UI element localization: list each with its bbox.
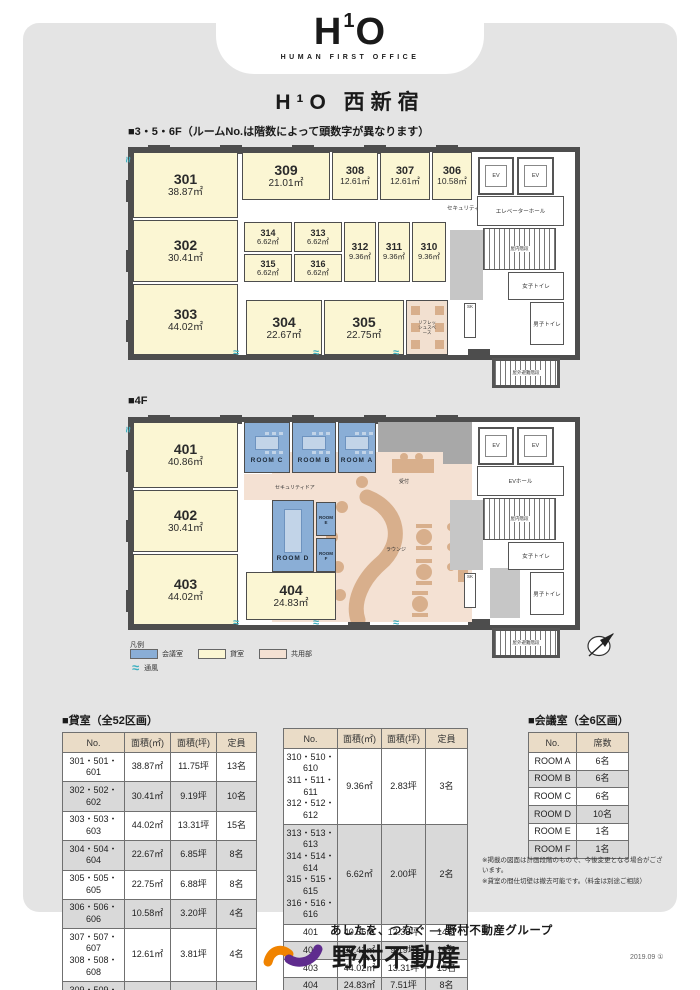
meeting-table-section: ■会議室（全6区画） No.席数 ROOM A6名ROOM B6名ROOM C6… — [528, 712, 629, 859]
table-cell: 9.36㎡ — [338, 749, 382, 825]
table-cell: 4名 — [217, 929, 257, 982]
legend-vent: ≈ 通風 — [132, 661, 158, 674]
room-number: 305 — [352, 314, 375, 330]
meeting-table — [255, 436, 279, 450]
vent-icon: ≈ — [393, 348, 399, 359]
reception-desk — [392, 459, 434, 473]
room-314: 314 6.62㎡ — [244, 222, 292, 252]
table-cell: 7名 — [217, 982, 257, 990]
column-header: 面積(坪) — [171, 733, 217, 753]
legend-swatch — [198, 649, 226, 659]
men-toilet-label: 男子トイレ — [533, 590, 561, 598]
logo-letter: H — [314, 13, 342, 51]
table-row: 313・513・613 314・514・614 315・515・615 316・… — [284, 825, 468, 925]
table-cell: 6.62㎡ — [338, 825, 382, 925]
room-area: 9.36㎡ — [383, 253, 405, 262]
women-toilet: 女子トイレ — [508, 542, 564, 570]
table-row: 310・510・610 311・511・611 312・512・6129.36㎡… — [284, 749, 468, 825]
meeting-room-d: ROOM D — [272, 500, 314, 572]
elevator-hall: エレベーターホール — [477, 196, 564, 226]
room-area: 38.87㎡ — [168, 187, 203, 199]
table-cell: 22.75㎡ — [125, 870, 171, 899]
table-cell: 3.20坪 — [171, 899, 217, 928]
logo-letter: O — [356, 13, 387, 51]
table-cell: 1名 — [577, 823, 629, 841]
elevator: EV — [517, 427, 554, 465]
wall-pillar — [468, 349, 490, 358]
meeting-room-c: ROOM C — [244, 422, 290, 473]
elevator-car: EV — [524, 435, 547, 457]
column-header: 面積(㎡) — [125, 733, 171, 753]
vent-icon: ≈ — [122, 426, 133, 432]
room-403: 403 44.02㎡ — [133, 554, 238, 625]
rental-table-section: ■貸室（全52区画） No.面積(㎡)面積(坪)定員 301・501・60138… — [62, 712, 257, 990]
room-area: 9.36㎡ — [418, 253, 440, 262]
table-cell: ROOM D — [529, 806, 577, 824]
sk-label: SK — [467, 574, 473, 579]
table-cell: 3.81坪 — [171, 929, 217, 982]
room-401: 401 40.86㎡ — [133, 422, 238, 488]
room-307: 307 12.61㎡ — [380, 152, 430, 200]
table-header-row: No.面積(㎡)面積(坪)定員 — [284, 729, 468, 749]
table-row: 305・505・60522.75㎡6.88坪8名 — [63, 870, 257, 899]
table-cell: 302・502・602 — [63, 782, 125, 811]
room-308: 308 12.61㎡ — [332, 152, 378, 200]
refresh-table — [435, 340, 444, 349]
table-cell: 306・506・606 — [63, 899, 125, 928]
stairs-label: 屋内階段 — [510, 516, 530, 522]
table-cell: 301・501・601 — [63, 753, 125, 782]
table-body: ROOM A6名ROOM B6名ROOM C6名ROOM D10名ROOM E1… — [529, 753, 629, 859]
header-card: H 1 O HUMAN FIRST OFFICE — [216, 0, 484, 74]
rental-table-title: ■貸室（全52区画） — [62, 712, 257, 728]
room-area: 6.62㎡ — [307, 238, 329, 247]
table-cell: 307・507・607 308・508・608 — [63, 929, 125, 982]
room-area: 12.61㎡ — [340, 177, 370, 187]
refresh-table — [411, 306, 420, 315]
table-cell: 11.75坪 — [171, 753, 217, 782]
table-cell: 12.61㎡ — [125, 929, 171, 982]
room-area: 6.62㎡ — [257, 269, 279, 278]
legend-label: 貸室 — [230, 649, 244, 659]
chairs — [265, 432, 269, 435]
vent-icon: ≈ — [393, 618, 399, 629]
meeting-room-a: ROOM A — [338, 422, 376, 473]
table-cell: 2.00坪 — [382, 825, 426, 925]
chairs — [312, 432, 316, 435]
table-row: 304・504・60422.67㎡6.85坪8名 — [63, 841, 257, 870]
vent-wave-icon: ≈ — [132, 661, 139, 674]
vent-icon: ≈ — [233, 348, 239, 359]
chairs — [355, 451, 359, 454]
column-header: 定員 — [426, 729, 468, 749]
room-area: 21.01㎡ — [268, 178, 303, 190]
room-315: 315 6.62㎡ — [244, 254, 292, 282]
elevator-hall-label: エレベーターホール — [496, 207, 546, 215]
room-number: 304 — [272, 314, 295, 330]
room-number: 302 — [174, 237, 197, 253]
column-header: No. — [529, 733, 577, 753]
table-cell: 6.35坪 — [171, 982, 217, 990]
notes: ※掲載の図面は計画段階のもので、今後変更となる場合がございます。 ※貸室の間仕切… — [482, 856, 667, 888]
room-404: 404 24.83㎡ — [246, 572, 336, 620]
chairs — [265, 451, 269, 454]
ev-label: EV — [532, 173, 539, 179]
column-header: 面積(坪) — [382, 729, 426, 749]
legend-swatch — [259, 649, 287, 659]
table-row: ROOM B6名 — [529, 770, 629, 788]
refresh-space: リフレッシュスペース — [406, 300, 448, 355]
men-toilet: 男子トイレ — [530, 572, 564, 615]
refresh-space-label: リフレッシュスペース — [416, 320, 438, 336]
men-toilet: 男子トイレ — [530, 302, 564, 345]
room-number: 309 — [274, 162, 297, 178]
legend-swatch — [130, 649, 158, 659]
elevator-car: EV — [485, 165, 507, 187]
table-cell: 6名 — [577, 770, 629, 788]
table-cell: 3名 — [426, 749, 468, 825]
ev-hall-label: EVホール — [509, 477, 533, 485]
men-toilet-label: 男子トイレ — [533, 320, 561, 328]
table-header-row: No.面積(㎡)面積(坪)定員 — [63, 733, 257, 753]
table-row: ROOM D10名 — [529, 806, 629, 824]
elevator-hall: EVホール — [477, 466, 564, 496]
table-row: 309・509・60921.01㎡6.35坪7名 — [63, 982, 257, 990]
legend-item-meeting: 会議室 — [130, 649, 183, 659]
table-cell: ROOM E — [529, 823, 577, 841]
table-cell: 13.31坪 — [171, 811, 217, 840]
escape-stairs-label: 屋外避難階段 — [512, 640, 541, 646]
table-row: 40424.83㎡7.51坪8名 — [284, 977, 468, 990]
room-area: 44.02㎡ — [168, 592, 203, 604]
meeting-table — [345, 436, 369, 450]
meeting-room-e: ROOM E — [316, 502, 336, 536]
table-cell: 2名 — [426, 825, 468, 925]
ev-label: EV — [492, 443, 499, 449]
table-cell: 313・513・613 314・514・614 315・515・615 316・… — [284, 825, 338, 925]
table-header-row: No.面積(㎡)面積(坪)定員 — [284, 729, 468, 749]
table-cell: 10名 — [577, 806, 629, 824]
table-row: ROOM C6名 — [529, 788, 629, 806]
note-line: ※掲載の図面は計画段階のもので、今後変更となる場合がございます。 — [482, 856, 667, 876]
meeting-table: No.席数 ROOM A6名ROOM B6名ROOM C6名ROOM D10名R… — [528, 732, 629, 859]
room-301: 301 38.87㎡ — [133, 152, 238, 218]
column-header: No. — [63, 733, 125, 753]
room-310: 310 9.36㎡ — [412, 222, 446, 282]
escape-stairs-label: 屋外避難階段 — [512, 370, 541, 376]
column-header: No. — [284, 729, 338, 749]
room-311: 311 9.36㎡ — [378, 222, 410, 282]
room-area: 22.75㎡ — [346, 330, 381, 342]
column-header: 定員 — [217, 733, 257, 753]
table-header-row: No.面積(㎡)面積(坪)定員 — [63, 733, 257, 753]
meeting-room-label: ROOM D — [277, 555, 310, 562]
table-row: 302・502・60230.41㎡9.19坪10名 — [63, 782, 257, 811]
reception-label: 受付 — [399, 478, 409, 485]
chairs — [312, 451, 316, 454]
elevator: EV — [478, 427, 514, 465]
table-cell: 8名 — [217, 841, 257, 870]
legend-label: 会議室 — [162, 649, 183, 659]
table-cell: 404 — [284, 977, 338, 990]
flyer-page: H 1 O HUMAN FIRST OFFICE H¹O 西新宿 ■3・5・6F… — [0, 0, 700, 990]
room-area: 40.86㎡ — [168, 457, 203, 469]
table-cell: 2.83坪 — [382, 749, 426, 825]
table-cell: 305・505・605 — [63, 870, 125, 899]
sk-label: SK — [467, 304, 473, 309]
indoor-stairs: 屋内階段 — [483, 228, 556, 270]
ev-label: EV — [532, 443, 539, 449]
section-title-4f: ■4F — [128, 395, 147, 407]
table-cell: 8名 — [217, 870, 257, 899]
table-cell: 309・509・609 — [63, 982, 125, 990]
table-cell: 6.88坪 — [171, 870, 217, 899]
vent-icon: ≈ — [313, 348, 319, 359]
sk-closet: SK — [464, 573, 476, 608]
elevator-car: EV — [524, 165, 547, 187]
room-316: 316 6.62㎡ — [294, 254, 342, 282]
chairs — [355, 432, 359, 435]
table-cell: ROOM B — [529, 770, 577, 788]
table-cell: 10名 — [217, 782, 257, 811]
meeting-table-title: ■会議室（全6区画） — [528, 712, 629, 728]
lounge-label: ラウンジ — [386, 546, 406, 553]
meeting-table — [302, 436, 326, 450]
legend-label: 通風 — [144, 663, 158, 673]
footer-company-name: 野村不動産 — [332, 938, 462, 974]
floorplan-4f: 受付 ラウンジ 401 40.86㎡ 402 30.41㎡ 403 44.02㎡… — [128, 417, 580, 630]
core-shaded-area — [450, 230, 483, 300]
women-toilet: 女子トイレ — [508, 272, 564, 300]
room-number: 403 — [174, 576, 197, 592]
room-area: 9.36㎡ — [349, 253, 371, 262]
table-cell: 8名 — [426, 977, 468, 990]
table-row: 301・501・60138.87㎡11.75坪13名 — [63, 753, 257, 782]
legend-label: 共用部 — [291, 649, 312, 659]
table-row: ROOM A6名 — [529, 753, 629, 771]
room-area: 30.41㎡ — [168, 253, 203, 265]
table-cell: 13名 — [217, 753, 257, 782]
nomura-logo-icon — [262, 941, 324, 971]
elevator: EV — [517, 157, 554, 195]
table-header-row: No.席数 — [529, 733, 629, 753]
section-title-356f: ■3・5・6F（ルームNo.は階数によって頭数字が異なります） — [128, 123, 429, 139]
table-cell: 4名 — [217, 899, 257, 928]
footer-tagline: あしたを、つなぐ ― 野村不動産グループ — [330, 922, 553, 938]
legend: 会議室 貸室 共用部 — [130, 649, 322, 659]
meeting-room-label: ROOM F — [318, 551, 334, 561]
meeting-room-label: ROOM E — [318, 515, 334, 525]
vent-icon: ≈ — [122, 156, 133, 162]
room-305: 305 22.75㎡ — [324, 300, 404, 355]
room-number: 402 — [174, 507, 197, 523]
room-area: 6.62㎡ — [257, 238, 279, 247]
elevator-car: EV — [485, 435, 507, 457]
column-header: 席数 — [577, 733, 629, 753]
table-cell: 24.83㎡ — [338, 977, 382, 990]
sk-closet: SK — [464, 303, 476, 338]
floorplan-356f: 301 38.87㎡ 309 21.01㎡ 308 12.61㎡ 307 12.… — [128, 147, 580, 360]
room-number: 401 — [174, 441, 197, 457]
refresh-table — [435, 306, 444, 315]
room-303: 303 44.02㎡ — [133, 284, 238, 355]
logo-digit: 1 — [343, 11, 354, 31]
elevator: EV — [478, 157, 514, 195]
table-cell: 22.67㎡ — [125, 841, 171, 870]
room-area: 6.62㎡ — [307, 269, 329, 278]
table-cell: 6名 — [577, 788, 629, 806]
room-area: 30.41㎡ — [168, 523, 203, 535]
table-cell: 304・504・604 — [63, 841, 125, 870]
meeting-room-f: ROOM F — [316, 538, 336, 572]
note-line: ※貸室の間仕切壁は撤去可能です。（料金は別途ご相談） — [482, 877, 667, 887]
table-cell: 38.87㎡ — [125, 753, 171, 782]
meeting-room-label: ROOM B — [298, 457, 331, 464]
meeting-table — [284, 509, 302, 553]
women-toilet-label: 女子トイレ — [522, 282, 550, 290]
security-door-label: セキュリティドア — [275, 484, 315, 491]
column-header: 面積(㎡) — [338, 729, 382, 749]
page-title: H¹O 西新宿 — [0, 86, 700, 116]
refresh-table — [411, 340, 420, 349]
vent-icon: ≈ — [233, 618, 239, 629]
compass-icon — [585, 630, 617, 660]
escape-stairs: 屋外避難階段 — [492, 358, 560, 388]
vent-icon: ≈ — [313, 618, 319, 629]
date-code: 2019.09 ① — [630, 953, 664, 961]
table-cell: 303・503・603 — [63, 811, 125, 840]
room-area: 24.83㎡ — [273, 598, 308, 610]
legend-item-common: 共用部 — [259, 649, 312, 659]
table-row: ROOM E1名 — [529, 823, 629, 841]
table-cell: 21.01㎡ — [125, 982, 171, 990]
table-row: 303・503・60344.02㎡13.31坪15名 — [63, 811, 257, 840]
core-shaded-area — [450, 500, 483, 570]
room-402: 402 30.41㎡ — [133, 490, 238, 552]
table-cell: 6.85坪 — [171, 841, 217, 870]
room-313: 313 6.62㎡ — [294, 222, 342, 252]
room-area: 44.02㎡ — [168, 322, 203, 334]
escape-stairs: 屋外避難階段 — [492, 628, 560, 658]
women-toilet-label: 女子トイレ — [522, 552, 550, 560]
room-number: 301 — [174, 171, 197, 187]
meeting-room-label: ROOM A — [341, 457, 373, 464]
room-312: 312 9.36㎡ — [344, 222, 376, 282]
room-number: 404 — [279, 582, 302, 598]
table-row: 306・506・60610.58㎡3.20坪4名 — [63, 899, 257, 928]
room-309: 309 21.01㎡ — [242, 152, 330, 200]
table-cell: 7.51坪 — [382, 977, 426, 990]
stairs-label: 屋内階段 — [510, 246, 530, 252]
entry-vestibule — [490, 568, 520, 618]
room-area: 10.58㎡ — [437, 177, 467, 187]
table-row: 307・507・607 308・508・60812.61㎡3.81坪4名 — [63, 929, 257, 982]
table-cell: ROOM C — [529, 788, 577, 806]
table-header-row: No.席数 — [529, 733, 629, 753]
table-cell: 44.02㎡ — [125, 811, 171, 840]
room-302: 302 30.41㎡ — [133, 220, 238, 282]
room-area: 22.67㎡ — [266, 330, 301, 342]
table-body: 301・501・60138.87㎡11.75坪13名302・502・60230.… — [63, 753, 257, 990]
table-cell: 10.58㎡ — [125, 899, 171, 928]
ev-label: EV — [492, 173, 499, 179]
logo-tagline: HUMAN FIRST OFFICE — [281, 54, 420, 61]
room-number: 303 — [174, 306, 197, 322]
table-cell: 9.19坪 — [171, 782, 217, 811]
meeting-room-b: ROOM B — [292, 422, 336, 473]
table-cell: 15名 — [217, 811, 257, 840]
table-cell: 310・510・610 311・511・611 312・512・612 — [284, 749, 338, 825]
h1o-logo: H 1 O — [314, 13, 386, 51]
legend-item-rental: 貸室 — [198, 649, 244, 659]
meeting-room-label: ROOM C — [251, 457, 284, 464]
room-304: 304 22.67㎡ — [246, 300, 322, 355]
table-cell: ROOM A — [529, 753, 577, 771]
indoor-stairs: 屋内階段 — [483, 498, 556, 540]
rental-table-left: No.面積(㎡)面積(坪)定員 301・501・60138.87㎡11.75坪1… — [62, 732, 257, 990]
table-cell: 6名 — [577, 753, 629, 771]
room-area: 12.61㎡ — [390, 177, 420, 187]
room-306: 306 10.58㎡ — [432, 152, 472, 200]
table-cell: 30.41㎡ — [125, 782, 171, 811]
